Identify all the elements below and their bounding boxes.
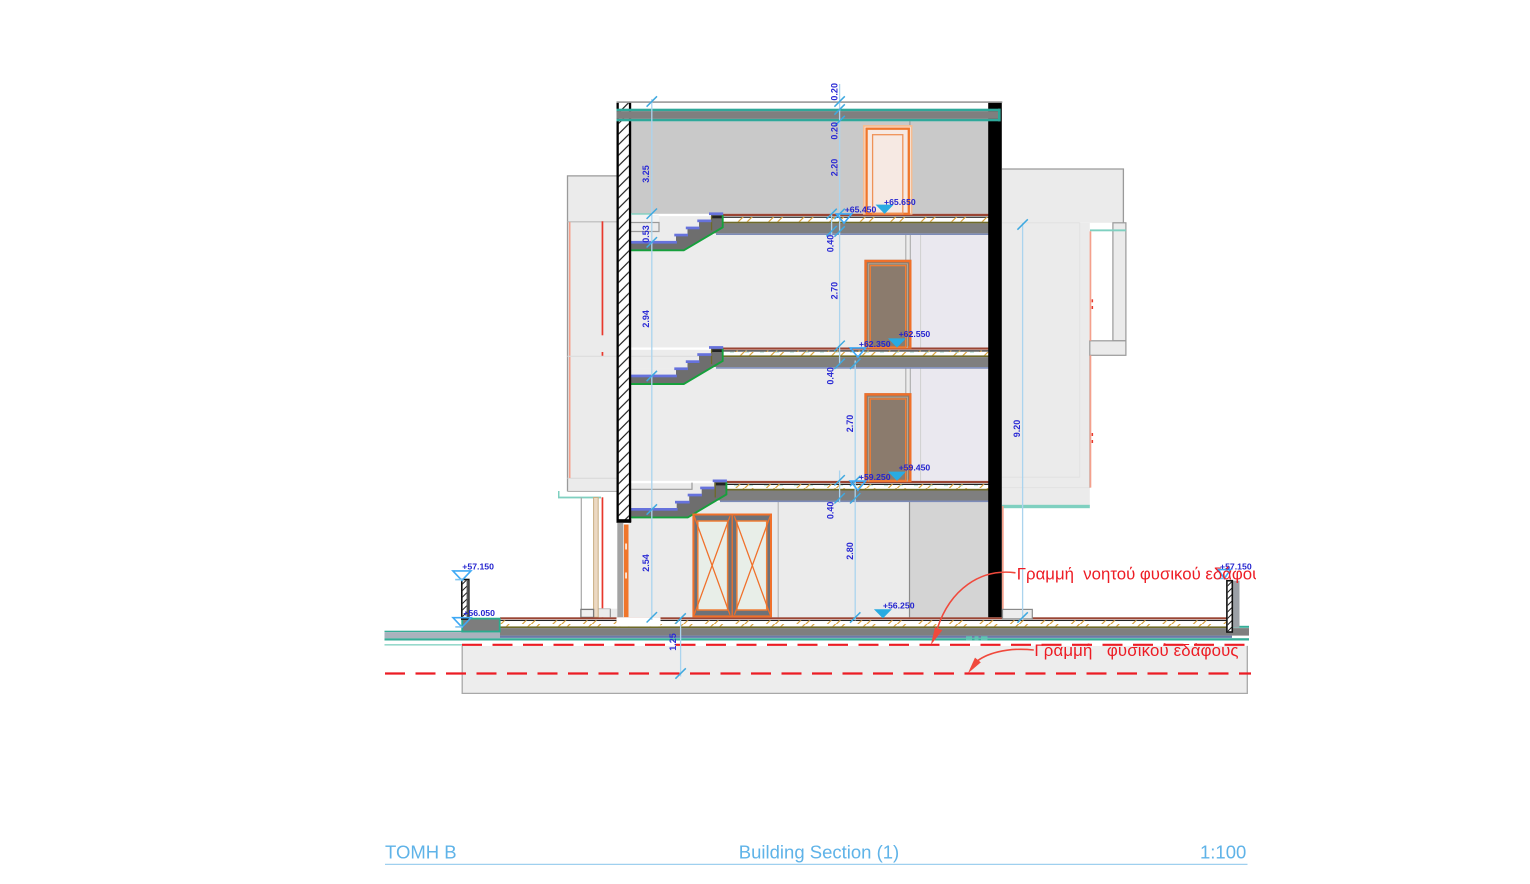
svg-text:Γραμμή νοητού φυσικού εδάφους: Γραμμή νοητού φυσικού εδάφους: [1017, 564, 1270, 583]
svg-text:+56.250: +56.250: [883, 600, 915, 610]
svg-text:+57.150: +57.150: [462, 562, 494, 572]
svg-text:Building Section (1): Building Section (1): [739, 842, 899, 863]
svg-text:2.20: 2.20: [829, 159, 839, 177]
svg-text:2.94: 2.94: [641, 310, 651, 328]
svg-text:Γραμμή φυσικού εδάφους: Γραμμή φυσικού εδάφους: [1034, 641, 1238, 660]
svg-text:2.70: 2.70: [845, 415, 855, 433]
svg-text:2.80: 2.80: [845, 542, 855, 560]
svg-text:0.53: 0.53: [641, 225, 651, 243]
svg-text:0.20: 0.20: [829, 122, 839, 140]
svg-text:0.40: 0.40: [826, 235, 836, 253]
svg-text:2.70: 2.70: [829, 282, 839, 300]
svg-text:ΤΟΜΗ Β: ΤΟΜΗ Β: [385, 842, 457, 863]
svg-text:2.54: 2.54: [641, 554, 651, 572]
svg-text:+62.550: +62.550: [899, 329, 931, 339]
svg-text:0.40: 0.40: [826, 502, 836, 520]
svg-text:+62.350: +62.350: [859, 339, 891, 349]
svg-text:0.40: 0.40: [826, 367, 836, 385]
svg-text:3.25: 3.25: [641, 165, 651, 183]
svg-text:1:100: 1:100: [1200, 842, 1246, 863]
svg-text:+56.050: +56.050: [463, 608, 495, 618]
svg-text:+65.450: +65.450: [845, 204, 877, 214]
svg-text:+59.450: +59.450: [899, 462, 931, 472]
svg-text:9.20: 9.20: [1012, 420, 1022, 438]
svg-text:1.25: 1.25: [668, 633, 678, 651]
svg-text:+59.250: +59.250: [859, 472, 891, 482]
svg-text:0.20: 0.20: [829, 83, 839, 101]
svg-text:+65.650: +65.650: [884, 197, 916, 207]
